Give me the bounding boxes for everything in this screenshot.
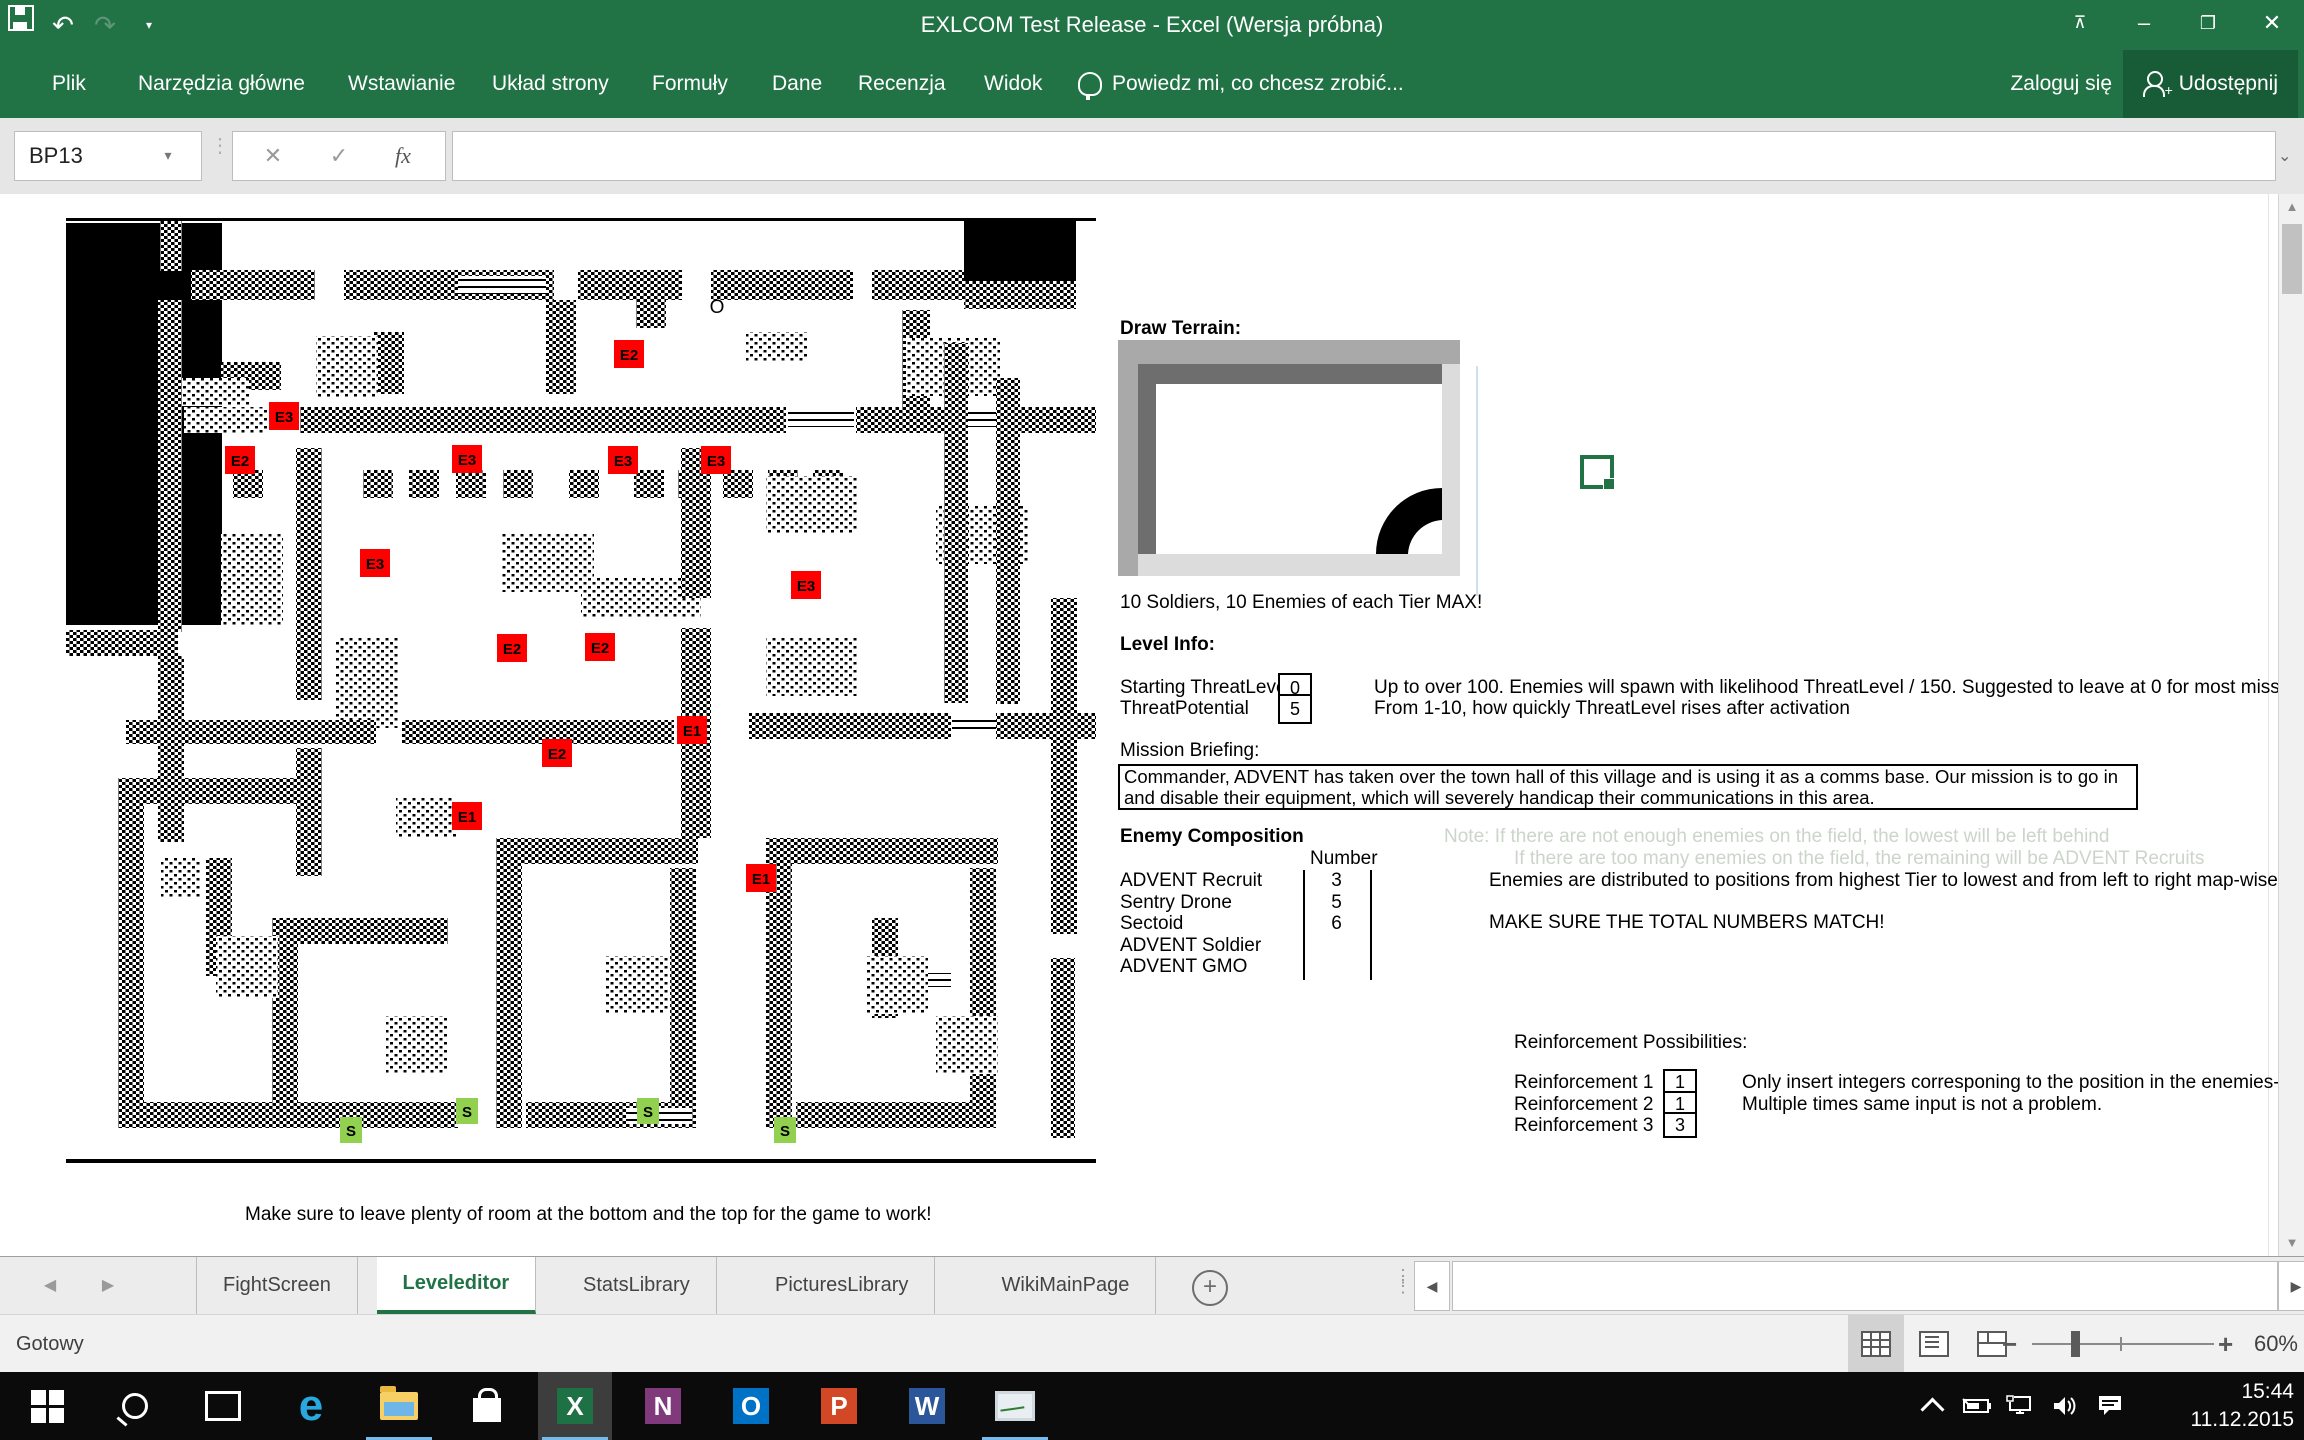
unit-label: E3 <box>614 453 632 470</box>
map-block-wall-dither <box>126 720 376 744</box>
map-block-floor-dither <box>184 407 268 433</box>
file-explorer-icon <box>380 1392 418 1420</box>
map-block-floor-dither <box>161 858 201 898</box>
task-view-icon <box>205 1391 241 1421</box>
enemy-composition-title: Enemy Composition <box>1120 826 1304 848</box>
enemy-distribution-note: Enemies are distributed to positions fro… <box>1489 870 2278 892</box>
enter-icon[interactable]: ✓ <box>309 132 369 180</box>
ribbon-tab-uk-ad-strony[interactable]: Układ strony <box>470 50 631 118</box>
horizontal-scrollbar[interactable] <box>1452 1261 2278 1311</box>
enemy-name: Sectoid <box>1120 913 1183 935</box>
ribbon-tab-widok[interactable]: Widok <box>962 50 1064 118</box>
edge-icon: e <box>299 1386 323 1426</box>
ribbon-tab-bar: PlikNarzędzia główneWstawianieUkład stro… <box>0 50 2304 118</box>
task-manager-icon <box>995 1391 1035 1421</box>
view-normal-button[interactable] <box>1848 1315 1904 1373</box>
lightbulb-icon <box>1078 72 1102 96</box>
restore-button[interactable]: ❐ <box>2176 0 2240 46</box>
map-block-wall-dither <box>872 270 964 300</box>
reinforcement-value-box[interactable]: 3 <box>1663 1112 1697 1138</box>
formula-bar: BP13 ▾ ⋮ ✕ ✓ fx ⌄ <box>0 118 2304 195</box>
unit-label: E3 <box>797 578 815 595</box>
map-block-wall-dither <box>158 656 184 842</box>
unit-label: E3 <box>275 409 293 426</box>
enemy-name: ADVENT Recruit <box>1120 870 1262 892</box>
map-block-wall-dither <box>723 470 753 498</box>
map-block-floor-dither <box>936 1016 998 1074</box>
ribbon-tab-recenzja[interactable]: Recenzja <box>836 50 968 118</box>
unit-label: E2 <box>591 640 609 657</box>
selected-cell-indicator <box>1580 455 1614 489</box>
name-box-dropdown-icon[interactable]: ▾ <box>152 131 184 179</box>
person-plus-icon: + <box>2143 71 2169 97</box>
level-info-value-box[interactable]: 5 <box>1278 694 1312 724</box>
sign-in-link[interactable]: Zaloguj się <box>1988 50 2134 118</box>
zoom-percentage[interactable]: 60% <box>2238 1315 2298 1373</box>
battery-icon[interactable] <box>1954 1372 1998 1440</box>
reinforcement-label: Reinforcement 3 <box>1514 1115 1653 1137</box>
ribbon-tab-wstawianie[interactable]: Wstawianie <box>326 50 477 118</box>
level-info-title: Level Info: <box>1120 634 1215 656</box>
map-block-black <box>964 221 1076 281</box>
sheet-tab-statslibrary[interactable]: StatsLibrary <box>557 1257 717 1314</box>
map-block-wall-dither <box>546 300 576 394</box>
ribbon-display-options-icon[interactable]: ⊼ <box>2048 0 2112 46</box>
map-block-wall-dither <box>792 838 998 864</box>
taskbar-button-store[interactable] <box>450 1372 524 1440</box>
level-info-desc: From 1-10, how quickly ThreatLevel rises… <box>1374 698 1850 720</box>
map-block-floor-dither <box>316 336 378 398</box>
page-layout-icon <box>1919 1331 1949 1357</box>
formula-buttons: ✕ ✓ fx <box>232 131 446 181</box>
grid-icon <box>1861 1331 1891 1357</box>
enemy-name: ADVENT GMO <box>1120 956 1247 978</box>
mission-briefing-box[interactable]: Commander, ADVENT has taken over the tow… <box>1118 764 2138 810</box>
taskbar-button-word[interactable]: W <box>890 1372 964 1440</box>
zoom-out-button[interactable]: − <box>2002 1315 2017 1373</box>
unit-label: S <box>346 1123 356 1140</box>
map-block-wall-dither <box>569 470 599 498</box>
scroll-up-icon[interactable]: ▲ <box>2279 194 2304 220</box>
ribbon-tab-formu-y[interactable]: Formuły <box>630 50 750 118</box>
view-page-layout-button[interactable] <box>1906 1315 1962 1373</box>
map-block-wall-dither <box>409 470 439 498</box>
enemy-count[interactable]: 3 <box>1303 870 1370 892</box>
sheet-tab-pictureslibrary[interactable]: PicturesLibrary <box>749 1257 935 1314</box>
unit-label: E2 <box>231 453 249 470</box>
enemy-count[interactable]: 6 <box>1303 913 1370 935</box>
unit-label: E3 <box>366 556 384 573</box>
clock-time: 15:44 <box>2190 1378 2294 1406</box>
level-map[interactable]: E2E3E2E3E3E3E3E3E2E2E1E2E1E1SSSSO <box>66 218 1096 1163</box>
sheet-tab-wikimainpage[interactable]: WikiMainPage <box>976 1257 1157 1314</box>
hscroll-left-icon[interactable]: ◀ <box>1414 1261 1450 1311</box>
taskbar-button-onenote[interactable]: N <box>626 1372 700 1440</box>
unit-label: E1 <box>683 723 701 740</box>
map-block-wall-dither <box>160 221 182 271</box>
tab-bar-handle[interactable]: ⋮⋮ <box>1394 1271 1412 1291</box>
store-icon <box>473 1398 501 1422</box>
map-block-floor-dither <box>866 956 928 1014</box>
reinforcement-note-2: Multiple times same input is not a probl… <box>1742 1094 2102 1116</box>
action-center-icon[interactable] <box>2088 1372 2132 1440</box>
map-block-wall-dither <box>796 1102 996 1128</box>
windows-taskbar: eXNOPW 15:44 11.12.2015 <box>0 1372 2304 1440</box>
taskbar-clock[interactable]: 15:44 11.12.2015 <box>2190 1378 2294 1434</box>
enemy-count[interactable]: 5 <box>1303 892 1370 914</box>
share-label: Udostępnij <box>2179 50 2278 118</box>
taskbar-button-task-view[interactable] <box>186 1372 260 1440</box>
volume-icon[interactable] <box>2042 1372 2086 1440</box>
map-block-wall-dither <box>944 343 968 703</box>
tell-me-label: Powiedz mi, co chcesz zrobić... <box>1112 50 1404 118</box>
map-block-window <box>788 411 854 427</box>
insert-function-icon[interactable]: fx <box>373 132 433 180</box>
windows-logo-icon <box>31 1390 64 1423</box>
map-block-wall-dither <box>1051 958 1075 1138</box>
map-block-wall-dither <box>636 300 666 328</box>
taskbar-button-excel[interactable]: X <box>538 1372 612 1440</box>
picture-guide-line <box>1476 366 1478 596</box>
reinforcement-label: Reinforcement 1 <box>1514 1072 1653 1094</box>
map-block-wall-dither <box>1051 598 1077 934</box>
enemy-name: ADVENT Soldier <box>1120 935 1261 957</box>
status-bar: Gotowy − + 60% <box>0 1314 2304 1373</box>
formula-bar-handle[interactable]: ⋮ <box>210 142 220 172</box>
taskbar-button-task-manager[interactable] <box>978 1372 1052 1440</box>
map-block-wall-dither <box>578 270 682 300</box>
map-block-wall-dither <box>144 778 296 804</box>
map-block-wall-dither <box>298 918 448 944</box>
formula-input[interactable] <box>452 131 2276 181</box>
reinforcement-title: Reinforcement Possibilities: <box>1514 1032 1747 1054</box>
taskbar-button-powerpoint[interactable]: P <box>802 1372 876 1440</box>
word-icon: W <box>909 1388 945 1424</box>
search-icon <box>122 1393 148 1419</box>
chevron-up-icon[interactable] <box>1910 1372 1954 1440</box>
map-block-window <box>458 276 546 294</box>
ribbon-tab-dane[interactable]: Dane <box>750 50 844 118</box>
draw-terrain-label: Draw Terrain: <box>1120 318 1241 340</box>
map-block-wall-dither <box>296 448 322 700</box>
zoom-slider-center-tick <box>2120 1337 2122 1351</box>
status-ready: Gotowy <box>16 1315 84 1373</box>
map-block-wall-dither <box>300 407 786 433</box>
map-block-wall-dither <box>749 713 951 739</box>
map-block-wall-dither <box>522 838 698 864</box>
share-button[interactable]: + Udostępnij <box>2123 50 2298 118</box>
map-block-wall-dither <box>158 300 182 632</box>
map-block-wall-dither <box>996 713 1096 739</box>
map-block-floor-dither <box>502 534 594 592</box>
enemy-note-faint-1: Note: If there are not enough enemies on… <box>1444 826 2109 848</box>
outlook-icon: O <box>733 1388 769 1424</box>
unit-label: E1 <box>458 809 476 826</box>
map-block-floor-dither <box>216 936 278 998</box>
map-block-wall-dither <box>296 748 322 876</box>
numbers-match-warning: MAKE SURE THE TOTAL NUMBERS MATCH! <box>1489 912 1885 934</box>
formula-bar-expand-icon[interactable]: ⌄ <box>2278 146 2291 166</box>
map-block-floor-dither <box>766 476 858 534</box>
taskbar-button-edge[interactable]: e <box>274 1372 348 1440</box>
unit-label: S <box>780 1123 790 1140</box>
number-header: Number <box>1310 848 1378 870</box>
zoom-slider-track[interactable] <box>2032 1343 2214 1345</box>
map-block-wall-dither <box>856 407 948 433</box>
map-block-floor-dither <box>746 332 808 362</box>
cancel-icon[interactable]: ✕ <box>243 132 303 180</box>
unit-label: E2 <box>503 641 521 658</box>
reinforcement-note-1: Only insert integers corresponing to the… <box>1742 1072 2278 1094</box>
map-block-wall-dither <box>374 332 404 394</box>
map-block-wall-dither <box>66 630 178 656</box>
taskbar-button-outlook[interactable]: O <box>714 1372 788 1440</box>
taskbar-button-file-explorer[interactable] <box>362 1372 436 1440</box>
vertical-scroll-thumb[interactable] <box>2282 224 2302 294</box>
map-block-wall-dither <box>191 270 315 300</box>
sheet-nav-right-icon[interactable]: ▶ <box>88 1257 128 1315</box>
objective-marker: O <box>710 297 725 318</box>
excel-window: ↶ ↷ ▾ EXLCOM Test Release - Excel (Wersj… <box>0 0 2304 1440</box>
unit-label: S <box>643 1104 653 1121</box>
map-block-wall-dither <box>363 470 393 498</box>
worksheet-area[interactable]: E2E3E2E3E3E3E3E3E2E2E1E2E1E1SSSSO Make s… <box>0 194 2278 1256</box>
map-block-wall-dither <box>634 470 664 498</box>
map-block-floor-dither <box>221 534 283 626</box>
unit-label: E2 <box>548 746 566 763</box>
unit-label: E3 <box>458 452 476 469</box>
map-block-floor-dither <box>386 1016 448 1074</box>
map-block-wall-dither <box>964 281 1076 309</box>
map-block-floor-dither <box>606 956 668 1014</box>
vertical-scrollbar[interactable]: ▲ ▼ <box>2278 194 2304 1256</box>
column-gridline <box>2268 194 2269 1256</box>
map-block-floor-dither <box>396 798 456 838</box>
ribbon-tab-narz-dzia-g-wne[interactable]: Narzędzia główne <box>116 50 327 118</box>
map-block-wall-dither <box>218 1102 458 1128</box>
map-block-wall-dither <box>670 868 696 1102</box>
scroll-down-icon[interactable]: ▼ <box>2279 1230 2304 1256</box>
window-title: EXLCOM Test Release - Excel (Wersja prób… <box>0 0 2304 50</box>
excel-icon: X <box>557 1388 593 1424</box>
level-info-desc: Up to over 100. Enemies will spawn with … <box>1374 677 2278 699</box>
map-footnote: Make sure to leave plenty of room at the… <box>245 1204 932 1226</box>
max-note: 10 Soldiers, 10 Enemies of each Tier MAX… <box>1120 592 1482 614</box>
minimize-button[interactable]: – <box>2112 0 2176 46</box>
map-block-wall-dither <box>503 470 533 498</box>
title-bar: ↶ ↷ ▾ EXLCOM Test Release - Excel (Wersj… <box>0 0 2304 50</box>
zoom-in-button[interactable]: + <box>2218 1315 2233 1373</box>
map-block-floor-dither <box>766 638 858 696</box>
clock-date: 11.12.2015 <box>2190 1406 2294 1434</box>
map-block-wall-dither <box>996 378 1020 704</box>
map-block-wall-dither <box>118 778 144 1108</box>
enemy-name: Sentry Drone <box>1120 892 1232 914</box>
level-info-label: ThreatPotential <box>1120 698 1249 720</box>
unit-label: E3 <box>707 453 725 470</box>
zoom-slider-thumb[interactable] <box>2071 1331 2080 1357</box>
hscroll-right-icon[interactable]: ▶ <box>2278 1261 2304 1311</box>
map-block-wall-dither <box>1012 407 1096 433</box>
taskbar-button-search[interactable] <box>98 1372 172 1440</box>
terrain-sample-image[interactable] <box>1118 340 1460 576</box>
sheet-tab-leveleditor[interactable]: Leveleditor <box>377 1257 537 1314</box>
map-block-black <box>66 218 1096 221</box>
taskbar-button-start[interactable] <box>10 1372 84 1440</box>
map-block-black <box>66 1159 1096 1163</box>
sheet-tab-bar: ◀ ▶ FightScreenLeveleditorStatsLibraryPi… <box>0 1256 2304 1315</box>
sheet-nav-left-icon[interactable]: ◀ <box>30 1257 70 1315</box>
map-block-wall-dither <box>402 720 674 744</box>
unit-label: E2 <box>620 347 638 364</box>
enemy-note-faint-2: If there are too many enemies on the fie… <box>1514 848 2204 870</box>
add-sheet-button[interactable]: + <box>1192 1270 1228 1306</box>
close-button[interactable]: ✕ <box>2240 0 2304 46</box>
powerpoint-icon: P <box>821 1388 857 1424</box>
ribbon-tab-plik[interactable]: Plik <box>30 50 108 118</box>
map-block-wall-dither <box>456 470 486 498</box>
map-block-wall-dither <box>233 470 263 498</box>
map-block-wall-dither <box>711 270 853 300</box>
unit-label: E1 <box>752 871 770 888</box>
onenote-icon: N <box>645 1388 681 1424</box>
tell-me-box[interactable]: Powiedz mi, co chcesz zrobić... <box>1056 50 1426 118</box>
map-block-window <box>952 717 996 733</box>
number-column-line-right <box>1370 870 1372 980</box>
reinforcement-label: Reinforcement 2 <box>1514 1094 1653 1116</box>
sheet-tab-fightscreen[interactable]: FightScreen <box>196 1257 358 1314</box>
network-icon[interactable] <box>1998 1372 2042 1440</box>
map-block-floor-dither <box>336 638 398 728</box>
map-block-wall-dither <box>496 838 522 1128</box>
mission-briefing-label: Mission Briefing: <box>1120 740 1259 762</box>
unit-label: S <box>462 1104 472 1121</box>
level-info-label: Starting ThreatLevel <box>1120 677 1291 699</box>
